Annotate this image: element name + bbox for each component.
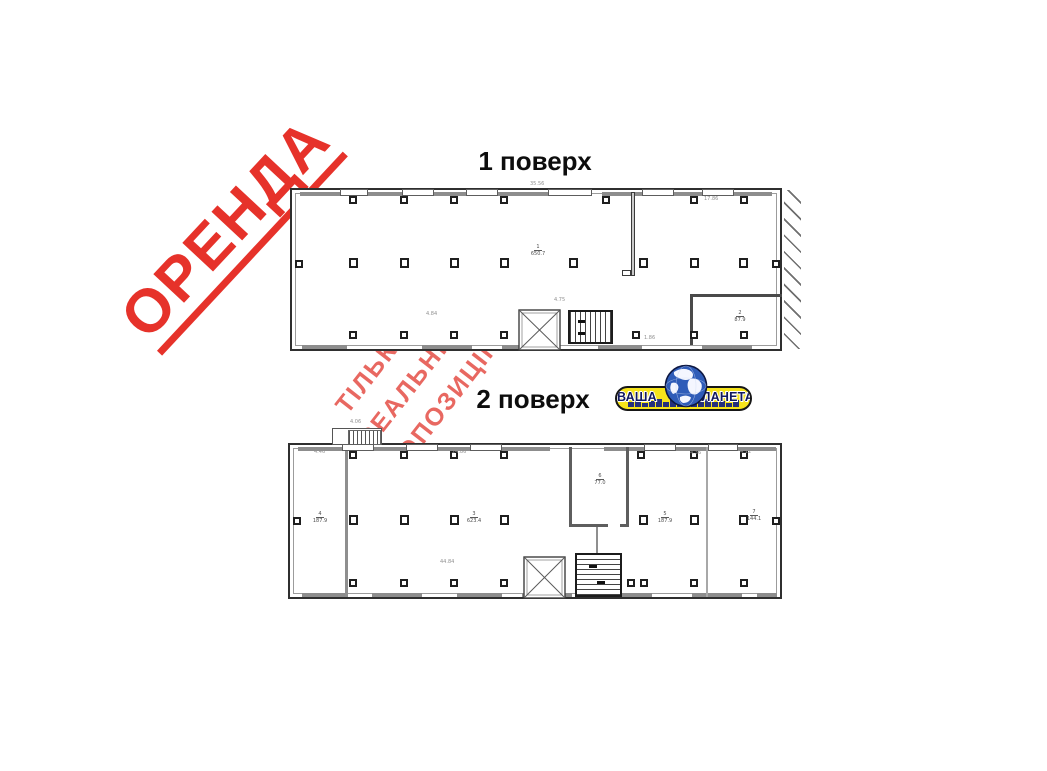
wall-column: [690, 331, 698, 339]
room-label: 5 187.9: [649, 511, 681, 524]
dimension-label: 4.84: [426, 311, 437, 317]
column: [500, 515, 509, 525]
dimension-label: 4.06: [350, 419, 361, 425]
wall-column: [500, 451, 508, 459]
dimension-label: 1.86: [644, 335, 655, 341]
window-segment: [406, 444, 438, 451]
globe-icon: [664, 364, 708, 408]
wall-segment: [598, 345, 642, 349]
wall-segment: [368, 192, 402, 196]
wall-column: [450, 196, 458, 204]
column: [500, 258, 509, 268]
room-label: 1 650.7: [522, 244, 554, 257]
window-segment: [342, 444, 374, 451]
partition-wall: [631, 192, 635, 276]
dimension-label: 4.36: [690, 450, 701, 456]
window-segment: [466, 189, 498, 196]
wall-column: [637, 451, 645, 459]
external-staircase: [332, 428, 382, 445]
wall-column: [632, 331, 640, 339]
window-segment: [642, 189, 674, 196]
wall-segment: [757, 593, 777, 597]
dimension-label: 4.12: [740, 449, 751, 455]
partition-wall-left: [345, 447, 348, 597]
wall-column: [295, 260, 303, 268]
room6-wall-bottom: [569, 524, 608, 527]
partition-end: [622, 270, 631, 276]
column: [639, 515, 648, 525]
dimension-label: 44.84: [440, 559, 454, 565]
column: [450, 258, 459, 268]
floor1-plan: 1 650.7 2 87.9: [290, 188, 782, 351]
room-label: 2 87.9: [724, 310, 756, 323]
room-label: 3 623.4: [458, 511, 490, 524]
wall-segment: [302, 345, 347, 349]
window-segment: [402, 189, 434, 196]
wall-column: [772, 260, 780, 268]
wall-segment: [372, 593, 422, 597]
column: [349, 515, 358, 525]
room6-wall-right: [626, 447, 629, 527]
wall-column: [627, 579, 635, 587]
wall-column: [640, 579, 648, 587]
wall-column: [690, 579, 698, 587]
wall-column: [450, 579, 458, 587]
wall-column: [400, 196, 408, 204]
wall-column: [349, 451, 357, 459]
wall-column: [400, 331, 408, 339]
wall-column: [349, 331, 357, 339]
wall-column: [293, 517, 301, 525]
company-logo: ВАША ПЛАНЕТА: [615, 386, 752, 411]
room2-wall-horizontal: [690, 294, 782, 297]
window-segment: [708, 444, 738, 451]
dimension-label: 35.56: [530, 181, 544, 187]
floor1-title: 1 поверх: [430, 146, 640, 177]
window-segment: [548, 189, 592, 196]
wall-column: [740, 579, 748, 587]
wall-column: [400, 451, 408, 459]
wall-column: [690, 196, 698, 204]
wall-column: [500, 331, 508, 339]
wall-segment: [457, 593, 502, 597]
room-label: 6 77.0: [584, 473, 616, 486]
window-segment: [644, 444, 676, 451]
staircase-icon: [575, 553, 622, 597]
wall-segment: [422, 345, 472, 349]
elevator-shaft-icon: [523, 556, 566, 599]
wall-column: [740, 196, 748, 204]
wall-column: [740, 331, 748, 339]
dimension-label: 4.75: [554, 297, 565, 303]
room-label: 7 144.1: [738, 509, 770, 522]
wall-segment: [692, 593, 742, 597]
room6-wall-bottom: [620, 524, 629, 527]
wall-segment: [302, 593, 347, 597]
staircase-icon: [568, 310, 613, 344]
column: [349, 258, 358, 268]
window-segment: [702, 189, 734, 196]
wall-column: [500, 579, 508, 587]
wall-column: [500, 196, 508, 204]
wall-column: [450, 331, 458, 339]
partition-wall-right: [706, 447, 708, 597]
column: [690, 515, 699, 525]
column: [569, 258, 578, 268]
dimension-label: 24.86: [452, 449, 466, 455]
column: [739, 258, 748, 268]
column: [400, 515, 409, 525]
wall-column: [602, 196, 610, 204]
wall-segment: [702, 345, 752, 349]
wall-column: [400, 579, 408, 587]
column: [639, 258, 648, 268]
floor2-plan: 4 187.9 3 623.4 6 77.0 5 187.9 7 144.1: [288, 443, 782, 599]
elevator-shaft-icon: [518, 309, 561, 351]
wall-column: [349, 196, 357, 204]
dimension-label: 4.46: [314, 449, 325, 455]
window-segment: [470, 444, 502, 451]
section-hatching: [784, 190, 801, 349]
wall-segment: [300, 192, 340, 196]
listing-image: ОРЕНДА ТІЛЬКИ РЕАЛЬНІ ПРОПОЗИЦІЇ 1 повер…: [0, 0, 1047, 771]
room-label: 4 187.9: [304, 511, 336, 524]
wall-column: [349, 579, 357, 587]
dimension-label: 17.86: [704, 196, 718, 202]
column: [690, 258, 699, 268]
room6-wall-left: [569, 447, 572, 527]
floor2-title: 2 поверх: [428, 384, 638, 415]
wall-column: [772, 517, 780, 525]
wall-segment: [502, 447, 550, 451]
window-segment: [340, 189, 368, 196]
column: [400, 258, 409, 268]
